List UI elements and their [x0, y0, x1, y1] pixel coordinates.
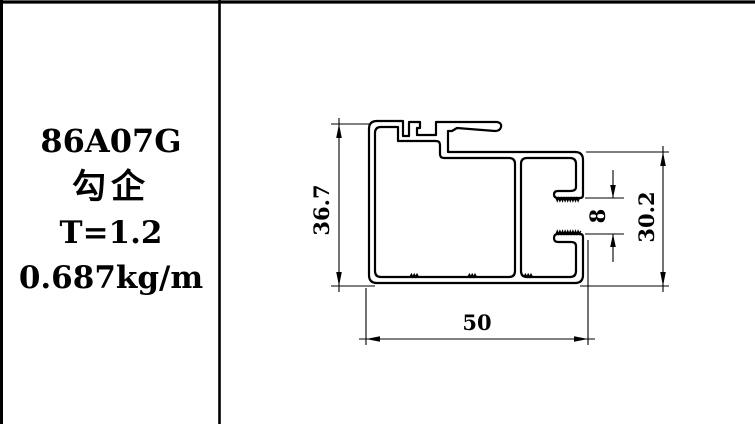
- dim-label-slot-gap: 8: [585, 196, 609, 236]
- drawing-sheet: 86A07G 勾企 T=1.2 0.687kg/m 36.7 8 30.2 50: [0, 0, 755, 424]
- profile-outer-path: [369, 121, 583, 283]
- dim-label-overall-width: 50: [437, 310, 517, 334]
- main-chamber-inner-path: [375, 127, 515, 277]
- profile-wall-thickness: T=1.2: [3, 211, 219, 255]
- arrow-302-up: [660, 152, 666, 166]
- dim-label-right-side-height: 30.2: [634, 177, 658, 257]
- info-panel: 86A07G 勾企 T=1.2 0.687kg/m: [3, 119, 219, 301]
- arrow-367-down: [336, 272, 342, 286]
- arrow-8-up: [610, 234, 616, 247]
- profile-model-code: 86A07G: [3, 119, 219, 163]
- dim-label-overall-height: 36.7: [309, 170, 333, 250]
- profile-outline: [369, 121, 583, 283]
- arrow-50-left: [366, 336, 380, 342]
- profile-product-name: 勾企: [3, 163, 219, 211]
- arrow-367-up: [336, 124, 342, 138]
- arrow-302-down: [660, 272, 666, 286]
- arrow-50-right: [574, 336, 588, 342]
- profile-unit-weight: 0.687kg/m: [3, 255, 219, 301]
- arrow-8-down: [610, 185, 616, 198]
